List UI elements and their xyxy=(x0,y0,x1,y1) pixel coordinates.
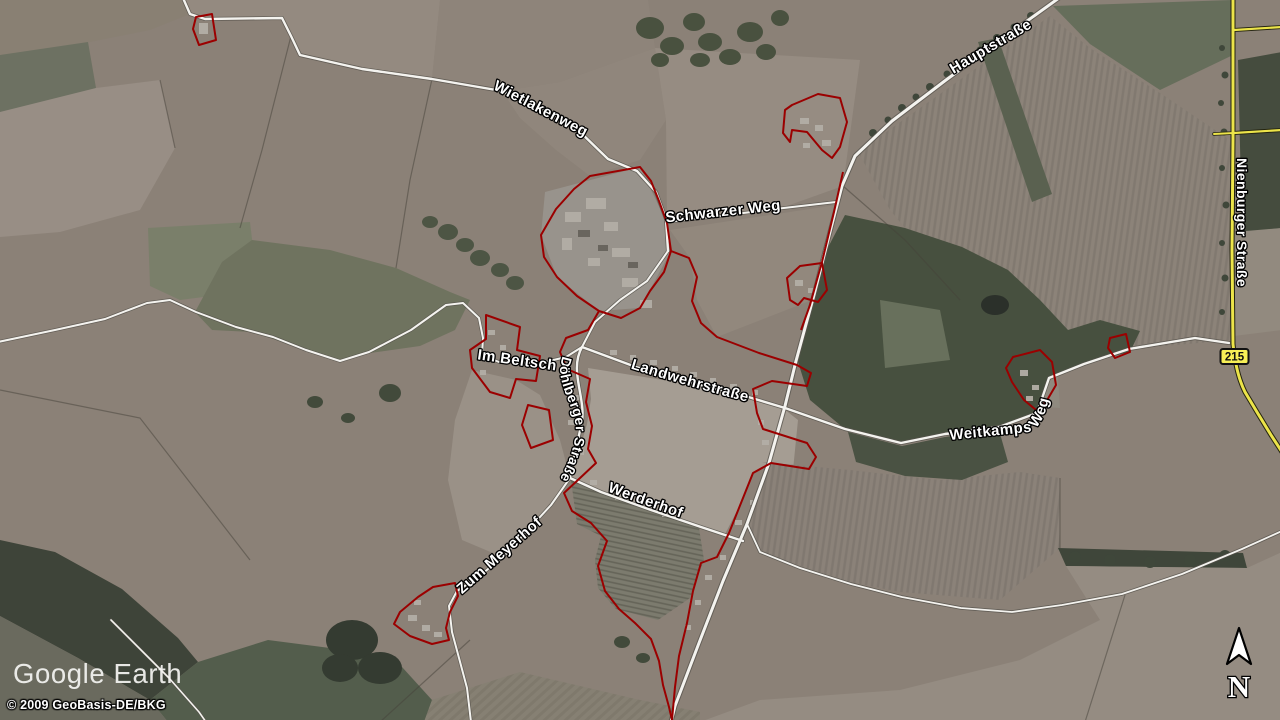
road-label-nienburger-strasse: Nienburger Straße xyxy=(1234,158,1250,287)
satellite-map: Wietlakenweg Schwarzer Weg Hauptstraße N… xyxy=(0,0,1280,720)
route-badge-215: 215 xyxy=(1221,349,1249,364)
copyright-attribution: © 2009 GeoBasis-DE/BKG xyxy=(7,698,166,712)
google-earth-logo: Google Earth xyxy=(13,658,182,690)
route-badge-number: 215 xyxy=(1225,352,1245,364)
map-viewport[interactable]: Wietlakenweg Schwarzer Weg Hauptstraße N… xyxy=(0,0,1280,720)
north-label: N xyxy=(1228,669,1250,704)
